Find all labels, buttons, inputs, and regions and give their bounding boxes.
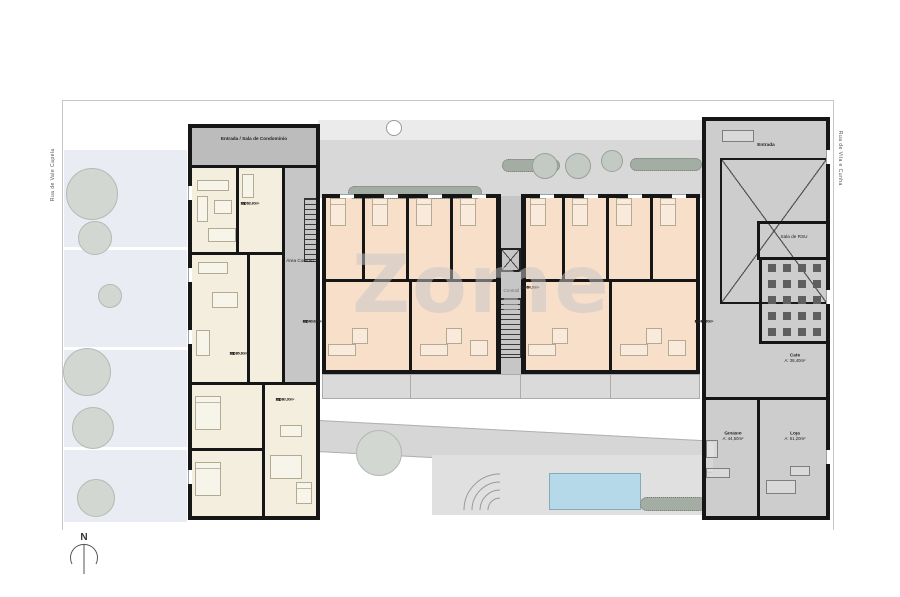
window	[826, 150, 830, 164]
street-label-left: Rua de Vale Capela	[50, 125, 55, 202]
tree	[601, 150, 623, 172]
furniture	[420, 344, 448, 356]
bed	[195, 396, 221, 430]
bed	[616, 198, 632, 226]
wall	[282, 165, 285, 385]
wall	[757, 221, 760, 260]
bed	[572, 198, 588, 226]
shop-area: A: 51,20m²	[776, 437, 815, 442]
tree	[66, 168, 118, 220]
furniture	[198, 262, 228, 274]
furniture	[196, 330, 210, 356]
shop-name: Loja	[790, 432, 800, 437]
tree	[532, 153, 558, 179]
shop-label: Loja A: 51,20m²	[776, 432, 815, 443]
furniture	[668, 340, 686, 356]
bed	[660, 198, 676, 226]
bed	[296, 482, 312, 504]
cafe-name: Café	[790, 354, 800, 359]
street-label-right: Rua de Vila e Cunha	[837, 131, 842, 208]
furniture	[270, 455, 302, 479]
wall	[757, 221, 830, 224]
ramp-void	[720, 158, 828, 304]
floor-plan-canvas: Rua de Vale Capela Rua de Vila e Cunha	[0, 0, 900, 597]
north-letter: N	[80, 532, 87, 543]
wall	[702, 397, 830, 400]
cafe-seating	[768, 264, 776, 272]
bed	[330, 198, 346, 226]
furniture	[212, 292, 238, 308]
window	[472, 194, 486, 198]
wall	[188, 448, 265, 451]
window	[628, 194, 642, 198]
corridor-label: Área Comum	[286, 259, 314, 265]
furniture	[646, 328, 662, 344]
window	[672, 194, 686, 198]
furniture	[706, 468, 730, 478]
wall	[702, 117, 830, 121]
furniture	[197, 180, 229, 191]
reception-desk	[722, 130, 754, 142]
unit-area-total: AC: 55,60m²	[230, 352, 249, 356]
bed	[195, 462, 221, 496]
balcony-divider	[410, 374, 411, 399]
gym-area: A: 44,50m²	[714, 437, 753, 442]
bed	[530, 198, 546, 226]
window	[188, 330, 192, 344]
amphitheater-steps	[446, 462, 504, 512]
bed	[416, 198, 432, 226]
lawn-band	[64, 250, 187, 347]
window	[188, 268, 192, 282]
wall	[188, 382, 320, 385]
bed	[372, 198, 388, 226]
wall	[702, 516, 830, 520]
bed	[460, 198, 476, 226]
gym-label: Ginásio A: 44,50m²	[714, 432, 753, 443]
tree	[565, 153, 591, 179]
balcony-strip	[322, 374, 700, 399]
site-boundary-left	[62, 100, 63, 530]
tree	[77, 479, 115, 517]
window	[188, 186, 192, 200]
furniture	[470, 340, 488, 356]
north-arrow: N	[62, 528, 108, 578]
furniture	[242, 174, 254, 198]
walkway-ring	[386, 120, 402, 136]
window	[584, 194, 598, 198]
balcony-divider	[520, 374, 521, 399]
furniture	[528, 344, 556, 356]
upper-walkway	[318, 120, 704, 140]
cafe-area: A: 38,40m²	[776, 359, 815, 364]
hall-label: Entrada / Sala de Condomínio	[209, 137, 299, 143]
wall	[188, 516, 320, 520]
furniture	[328, 344, 356, 356]
cafe-label: Café A: 38,40m²	[776, 354, 815, 365]
wall	[247, 252, 250, 385]
unit-area-total: AC: 104,30m²	[303, 320, 323, 324]
wall	[696, 194, 700, 374]
furniture	[620, 344, 648, 356]
balcony-divider	[610, 374, 611, 399]
rsu-label: Sala de RSU	[769, 235, 819, 241]
wall	[188, 124, 192, 520]
wall	[188, 165, 320, 168]
site-boundary-top	[62, 100, 834, 101]
watermark: Zome	[352, 238, 611, 331]
window	[428, 194, 442, 198]
wall	[757, 397, 760, 518]
unit-area-total: AC: 86,20m²	[695, 320, 714, 324]
entrance-label: Entrada	[746, 143, 787, 149]
wall	[188, 124, 320, 128]
site-boundary-right	[833, 100, 834, 530]
wall	[322, 194, 326, 374]
window	[826, 450, 830, 464]
window	[340, 194, 354, 198]
tree	[72, 407, 114, 449]
wall	[650, 194, 653, 282]
furniture	[197, 196, 208, 222]
unit-area-total: AC: 53,00m²	[276, 398, 295, 402]
gym-name: Ginásio	[724, 432, 741, 437]
furniture	[208, 228, 236, 242]
wall	[757, 257, 830, 260]
wall	[702, 117, 706, 520]
furniture	[766, 480, 796, 494]
tree	[63, 348, 111, 396]
furniture	[280, 425, 302, 437]
unit-area-total: AC: 58,20m²	[241, 202, 260, 206]
left-building-hall	[190, 127, 318, 166]
window	[188, 470, 192, 484]
wall	[759, 341, 830, 344]
tree	[356, 430, 402, 476]
wall	[759, 257, 762, 344]
hedge	[640, 497, 706, 511]
window	[540, 194, 554, 198]
hedge	[630, 158, 702, 171]
wall	[262, 382, 265, 520]
tree	[98, 284, 122, 308]
window	[826, 290, 830, 304]
tree	[78, 221, 112, 255]
furniture	[706, 440, 718, 458]
pool	[549, 473, 641, 510]
furniture	[214, 200, 232, 214]
furniture	[790, 466, 810, 476]
window	[384, 194, 398, 198]
wall	[236, 165, 239, 255]
